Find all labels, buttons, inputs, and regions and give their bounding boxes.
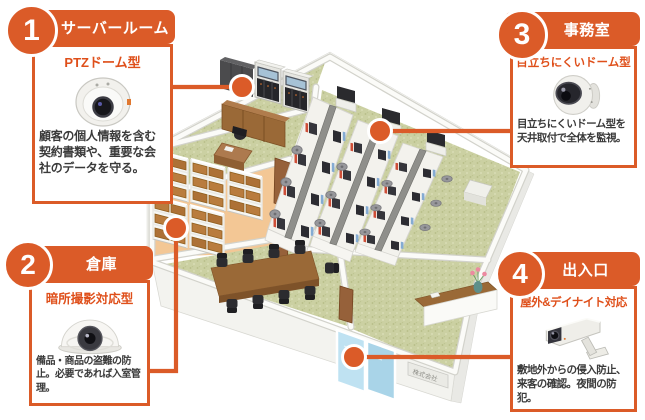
discreet-dome-camera-image bbox=[539, 72, 609, 118]
entrance-door-pane bbox=[367, 341, 395, 400]
office-camera-marker bbox=[369, 120, 392, 143]
server-room-camera-marker bbox=[231, 76, 254, 99]
callout-4-number-badge: 4 bbox=[495, 249, 545, 299]
server-rack bbox=[283, 69, 313, 113]
camera-type-label: 屋外&デイナイト対応 bbox=[520, 294, 627, 310]
callout-2-number-badge: 2 bbox=[3, 240, 53, 290]
ptz-dome-camera-image bbox=[67, 73, 139, 129]
camera-description: 敷地外からの侵入防止、来客の確認。夜間の防犯。 bbox=[513, 364, 634, 406]
camera-type-label: 暗所撮影対応型 bbox=[46, 288, 134, 307]
camera-description: 備品・商品の盗難の防止。必要であれば入室管理。 bbox=[32, 355, 147, 395]
low-light-dome-camera-image bbox=[51, 309, 129, 355]
outdoor-box-camera-image bbox=[531, 312, 617, 364]
entrance-camera-marker bbox=[343, 346, 366, 369]
callout-1-number-badge: 1 bbox=[5, 4, 58, 57]
callout-3-number-badge: 3 bbox=[496, 9, 548, 61]
camera-type-label: PTZドーム型 bbox=[64, 52, 140, 71]
callout-4-box: 屋外&デイナイト対応 敷地外からの侵入防止、来客の確認。夜間の防犯。 bbox=[510, 286, 637, 412]
callout-1-box: PTZドーム型 顧客の個人情報を含む契約書類や、重要な会社のデータを守る。 bbox=[32, 44, 173, 204]
warehouse-camera-marker bbox=[165, 217, 188, 240]
callout-3-box: 目立ちにくいドーム型 目立ちにくいドーム型を天井取付で全体を監視。 bbox=[510, 46, 637, 168]
callout-2-box: 暗所撮影対応型 備品・商品の盗難の防止。必要であれば入室管理。 bbox=[29, 280, 150, 406]
camera-description: 目立ちにくいドーム型を天井取付で全体を監視。 bbox=[513, 118, 634, 146]
camera-placement-infographic: { "colors": { "accent_orange": "#DB5B28"… bbox=[0, 0, 645, 420]
reception-door bbox=[339, 286, 353, 323]
server-rack bbox=[255, 60, 285, 104]
camera-description: 顧客の個人情報を含む契約書類や、重要な会社のデータを守る。 bbox=[35, 129, 170, 177]
